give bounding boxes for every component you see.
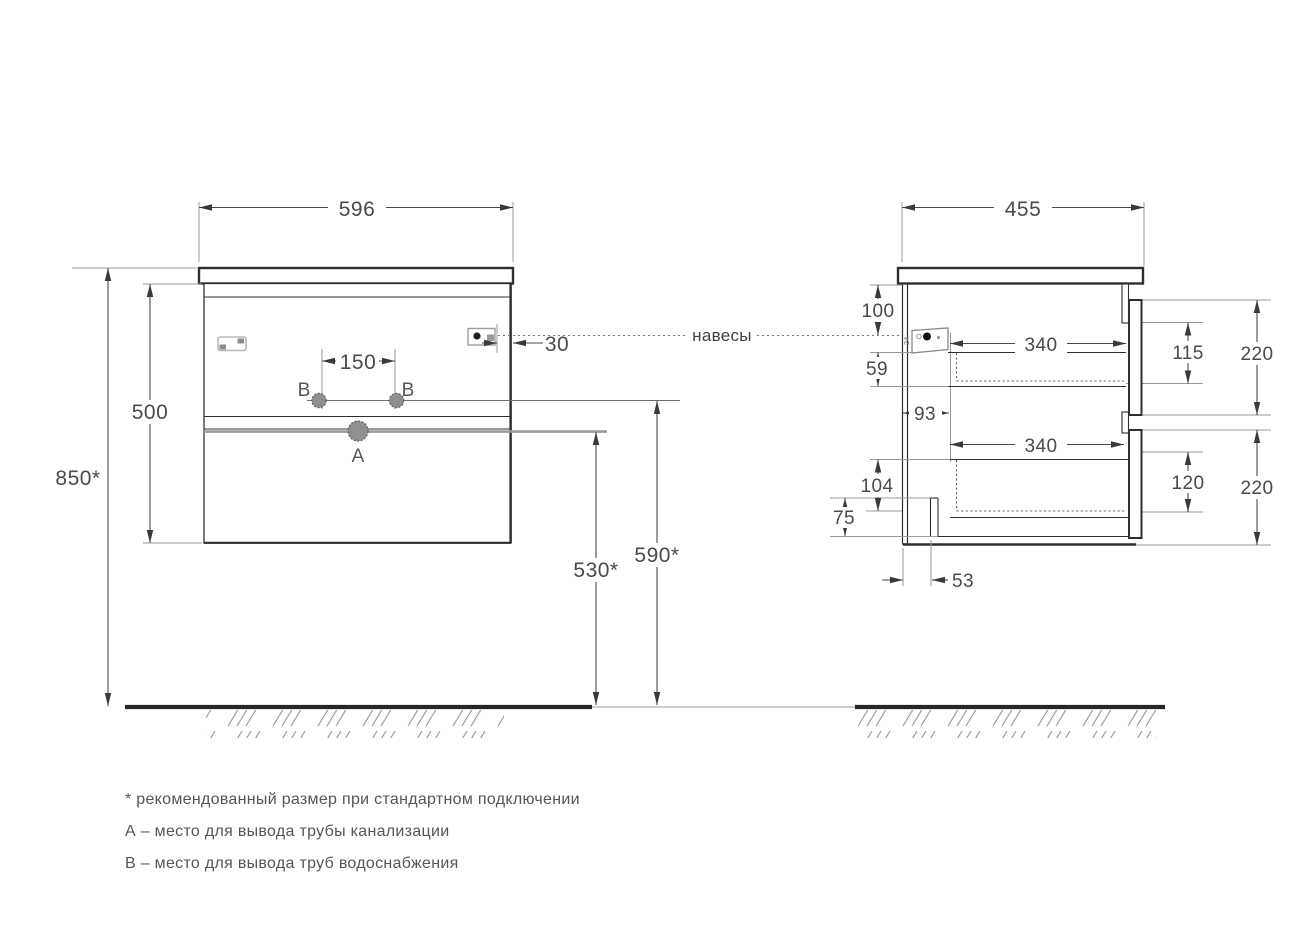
dim-supply-height: 590* xyxy=(631,401,683,705)
dim-body-height-label: 500 xyxy=(132,401,169,424)
dim-front-height-label: 850* xyxy=(55,467,100,490)
dim-siphon-clearance-label: 104 xyxy=(861,476,894,497)
dim-lower-front-height-label: 220 xyxy=(1241,478,1274,499)
dim-upper-drawer-inner-label: 115 xyxy=(1172,343,1204,364)
side-countertop xyxy=(898,268,1143,284)
hangers-label: навесы xyxy=(692,326,752,345)
legend-note-b: В – место для вывода труб водоснабжения xyxy=(125,855,459,872)
point-b-left-label: B xyxy=(298,380,311,401)
dim-front-width: 596 xyxy=(199,193,513,262)
side-front-top-rail xyxy=(1122,284,1129,323)
floor-hatch-right xyxy=(858,710,1156,738)
upper-drawer-box xyxy=(948,353,1126,387)
side-front-mid-rail xyxy=(1122,412,1129,433)
dim-back-clearance-label: 93 xyxy=(914,404,936,425)
legend-note-recommended: * рекомендованный размер при стандартном… xyxy=(125,791,580,808)
wall-hanger-detail: 24 xyxy=(902,328,948,353)
point-a-label: A xyxy=(352,446,365,467)
dim-lower-drawer-depth: 340 xyxy=(950,434,1124,457)
point-b-right-label: B xyxy=(402,380,415,401)
side-back-panel xyxy=(903,284,908,544)
dim-hanger-top-offset-label: 100 xyxy=(862,301,895,322)
floor xyxy=(125,707,1165,738)
dim-holes-spacing-label: 150 xyxy=(340,351,377,374)
dim-side-depth: 455 xyxy=(902,193,1144,266)
upper-drawer-front xyxy=(1129,300,1142,415)
dim-front-height: 850* xyxy=(52,268,197,706)
dim-upper-drawer-inner: 115 xyxy=(1167,323,1209,384)
dim-back-offset: 53 xyxy=(882,540,974,592)
dim-hanger-top-offset: 100 xyxy=(855,285,902,335)
floor-hatch-left xyxy=(206,710,504,738)
dim-bottom-rail-label: 75 xyxy=(833,508,855,529)
side-view: 455 24 xyxy=(829,193,1280,592)
dim-drain-height: 530* xyxy=(570,432,622,705)
legend-note-a: А – место для вывода трубы канализации xyxy=(125,823,449,840)
front-countertop xyxy=(199,268,513,284)
dim-side-depth-label: 455 xyxy=(1005,198,1042,221)
dim-body-height: 500 xyxy=(126,284,202,543)
front-cabinet-body xyxy=(204,284,511,544)
dim-drain-height-label: 530* xyxy=(573,559,618,582)
dim-back-clearance: 93 xyxy=(903,403,949,425)
drawing-svg: 596 30 навес xyxy=(0,0,1300,936)
dim-upper-front-height: 220 xyxy=(1234,300,1280,415)
front-view: 596 30 навес xyxy=(52,193,903,706)
dim-lower-drawer-inner-label: 120 xyxy=(1172,473,1205,494)
point-a-marker xyxy=(348,421,368,441)
lower-drawer-front xyxy=(1129,430,1142,538)
dim-hanger-inset-label: 30 xyxy=(545,333,569,356)
point-b-left-marker xyxy=(312,393,326,407)
legend: * рекомендованный размер при стандартном… xyxy=(125,791,580,872)
hanger-screw-dot xyxy=(923,333,931,341)
dim-lower-drawer-inner: 120 xyxy=(1167,452,1209,512)
hanger-detail-label: 24 xyxy=(902,337,911,345)
dim-lower-drawer-depth-label: 340 xyxy=(1025,436,1058,457)
dim-hanger-drop-label: 59 xyxy=(866,359,888,380)
vanity-dimension-drawing: 596 30 навес xyxy=(0,0,1300,936)
dim-bottom-rail: 75 xyxy=(829,498,862,536)
dim-upper-front-height-label: 220 xyxy=(1241,344,1274,365)
side-extension-lines xyxy=(951,300,1272,545)
dim-lower-front-height: 220 xyxy=(1234,430,1280,545)
dim-back-offset-label: 53 xyxy=(952,571,974,592)
left-hanger-bracket xyxy=(218,337,246,351)
dim-upper-drawer-depth-label: 340 xyxy=(1025,335,1058,356)
dim-front-width-label: 596 xyxy=(339,198,376,221)
dim-supply-height-label: 590* xyxy=(634,544,679,567)
lower-drawer-box xyxy=(950,460,1130,518)
